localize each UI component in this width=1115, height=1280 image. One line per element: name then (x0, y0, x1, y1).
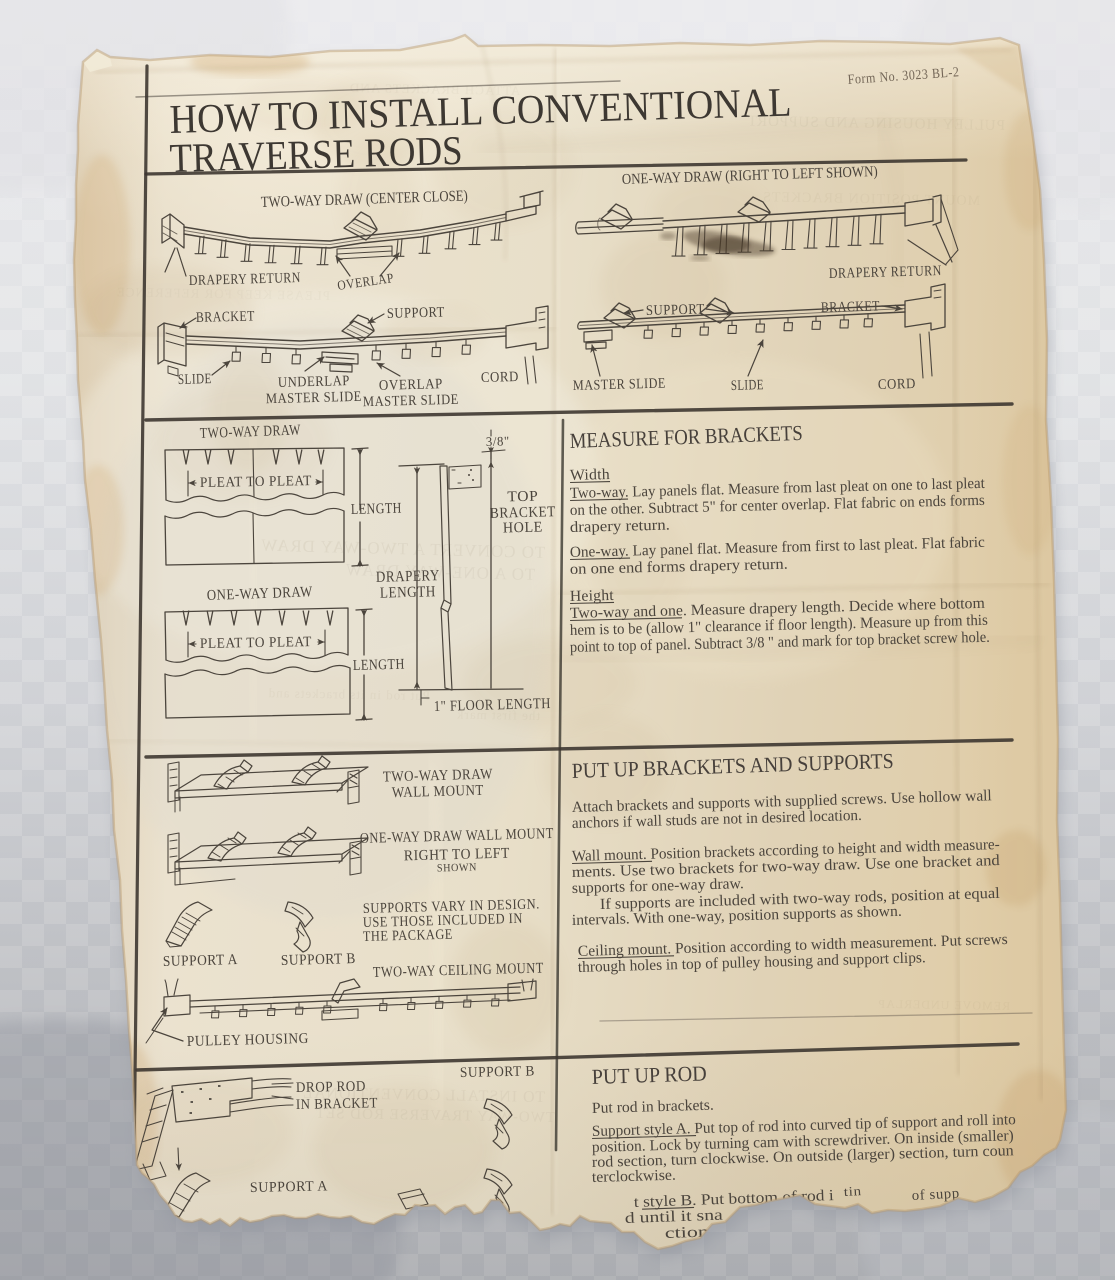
svg-text:drapery return.: drapery return. (570, 517, 670, 536)
svg-text:THE PACKAGE: THE PACKAGE (363, 927, 453, 945)
svg-text:LENGTH: LENGTH (380, 583, 436, 601)
svg-text:1" FLOOR LENGTH: 1" FLOOR LENGTH (434, 696, 551, 715)
svg-text:DRAPERY RETURN: DRAPERY RETURN (189, 270, 301, 289)
svg-text:terclockwise.: terclockwise. (592, 1167, 676, 1186)
svg-text:MASTER SLIDE: MASTER SLIDE (573, 376, 666, 394)
svg-text:BRACKET: BRACKET (196, 308, 255, 326)
svg-text:3/8": 3/8" (486, 433, 511, 449)
svg-text:WALL MOUNT: WALL MOUNT (392, 783, 484, 801)
svg-text:SUPPORT A: SUPPORT A (163, 952, 238, 970)
svg-text:IN BRACKET: IN BRACKET (296, 1095, 378, 1113)
svg-text:TRAVERSE RODS: TRAVERSE RODS (169, 127, 463, 181)
svg-text:CORD: CORD (878, 376, 916, 393)
svg-text:HOLE: HOLE (503, 519, 543, 536)
svg-text:PULLEY HOUSING: PULLEY HOUSING (187, 1031, 309, 1050)
svg-text:UNDERLAP: UNDERLAP (278, 373, 350, 391)
svg-text:BRACKET: BRACKET (821, 298, 880, 316)
svg-text:SUPPORT B: SUPPORT B (281, 951, 356, 969)
svg-text:Put rod in its brackets and: Put rod in its brackets and (268, 685, 431, 703)
svg-text:PUT UP ROD: PUT UP ROD (591, 1061, 707, 1089)
svg-text:SLIDE: SLIDE (178, 371, 212, 388)
svg-text:Put rod in brackets.: Put rod in brackets. (592, 1097, 714, 1117)
svg-text:OVERLAP: OVERLAP (379, 376, 443, 394)
svg-text:CORD: CORD (481, 369, 519, 386)
svg-text:LENGTH: LENGTH (351, 501, 402, 518)
svg-text:REMOVE UNDERLAP: REMOVE UNDERLAP (877, 997, 1010, 1013)
svg-text:SUPPORT: SUPPORT (387, 304, 445, 322)
svg-text:PLEAT TO PLEAT: PLEAT TO PLEAT (200, 634, 312, 652)
svg-text:MASTER SLIDE: MASTER SLIDE (363, 392, 459, 411)
svg-text:LENGTH: LENGTH (353, 657, 405, 674)
svg-text:TOP: TOP (507, 489, 538, 506)
svg-text:SUPPORT B: SUPPORT B (460, 1063, 535, 1081)
svg-text:SUPPORT A: SUPPORT A (250, 1178, 328, 1196)
svg-text:MASTER SLIDE: MASTER SLIDE (266, 389, 362, 408)
svg-text:SLIDE: SLIDE (731, 377, 764, 394)
svg-text:SUPPORT: SUPPORT (646, 301, 705, 319)
svg-text:PLEAT TO PLEAT: PLEAT TO PLEAT (200, 473, 312, 491)
svg-text:SHOWN: SHOWN (437, 861, 477, 874)
svg-text:tin: tin (843, 1183, 862, 1199)
svg-text:DROP ROD: DROP ROD (296, 1079, 366, 1096)
svg-text:DRAPERY RETURN: DRAPERY RETURN (829, 263, 942, 282)
